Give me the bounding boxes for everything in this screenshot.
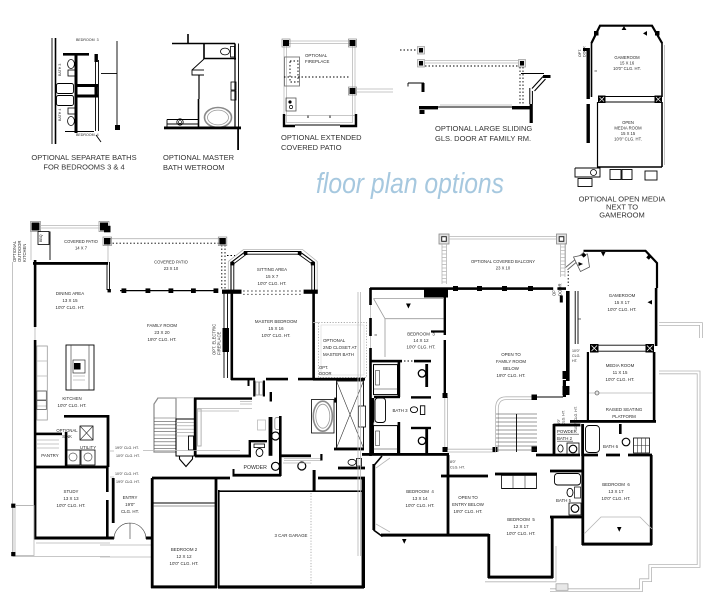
svg-text:GLS. DOOR AT FAMILY RM.: GLS. DOOR AT FAMILY RM. [435, 134, 531, 143]
svg-text:OPTIONAL MASTER: OPTIONAL MASTER [163, 153, 235, 162]
svg-text:FAMILY ROOM: FAMILY ROOM [147, 323, 177, 328]
svg-text:MASTER BATH: MASTER BATH [323, 352, 354, 357]
svg-text:19'0": 19'0" [125, 502, 135, 507]
svg-text:13 X 15: 13 X 15 [62, 298, 78, 303]
svg-text:15 X 16: 15 X 16 [620, 61, 635, 66]
svg-text:DOOR: DOOR [583, 46, 587, 57]
svg-text:BATH 2: BATH 2 [557, 436, 573, 441]
svg-text:BATH 4: BATH 4 [58, 109, 62, 121]
svg-text:PLATFORM: PLATFORM [612, 414, 636, 419]
svg-text:10'0" CLG. HT.: 10'0" CLG. HT. [57, 503, 86, 508]
svg-text:MEDIA ROOM: MEDIA ROOM [606, 363, 635, 368]
svg-text:23 X 20: 23 X 20 [154, 330, 170, 335]
svg-text:23 X 10: 23 X 10 [164, 266, 179, 271]
svg-text:10'0" CLG. HT.: 10'0" CLG. HT. [115, 472, 139, 476]
svg-text:10'0" CLG. HT.: 10'0" CLG. HT. [574, 406, 578, 430]
svg-text:BELOW: BELOW [503, 366, 520, 371]
svg-text:10'0": 10'0" [572, 349, 581, 353]
svg-text:CLG. HT.: CLG. HT. [450, 466, 465, 470]
svg-text:OPEN: OPEN [622, 120, 634, 125]
svg-text:10'0" CLG. HT.: 10'0" CLG. HT. [258, 281, 287, 286]
svg-text:GAMEROOM: GAMEROOM [599, 211, 644, 220]
svg-text:OPTIONAL SEPARATE BATHS: OPTIONAL SEPARATE BATHS [31, 153, 136, 162]
svg-text:15 X 16: 15 X 16 [268, 326, 284, 331]
svg-text:13 X 13: 13 X 13 [63, 496, 79, 501]
svg-text:11 X 15: 11 X 15 [613, 370, 628, 375]
svg-text:OPTIONAL: OPTIONAL [305, 53, 328, 58]
svg-text:OPT.: OPT. [319, 365, 328, 370]
svg-text:OPT.: OPT. [578, 49, 582, 57]
svg-text:DOOR: DOOR [319, 371, 332, 376]
svg-text:OPTIONAL EXTENDED: OPTIONAL EXTENDED [281, 133, 362, 142]
svg-text:10'0" CLG. HT.: 10'0" CLG. HT. [407, 345, 436, 350]
svg-text:OPTIONAL LARGE SLIDING: OPTIONAL LARGE SLIDING [435, 124, 532, 133]
svg-text:HT.: HT. [572, 359, 578, 363]
svg-text:FIREPLACE: FIREPLACE [217, 332, 222, 355]
svg-text:19'0" CLG. HT.: 19'0" CLG. HT. [115, 446, 139, 450]
svg-text:BBQ: BBQ [39, 234, 43, 242]
svg-text:BEDROOM 6: BEDROOM 6 [602, 482, 630, 487]
svg-text:0: 0 [374, 334, 378, 336]
svg-text:2ND CLOSET AT: 2ND CLOSET AT [323, 345, 357, 350]
svg-text:RAISED SEATING: RAISED SEATING [606, 407, 643, 412]
svg-text:BATH 6: BATH 6 [603, 444, 619, 449]
svg-text:8'0": 8'0" [450, 460, 457, 464]
svg-text:BATH WETROOM: BATH WETROOM [163, 163, 225, 172]
svg-text:CLG. HT.: CLG. HT. [121, 509, 139, 514]
svg-text:10'0" CLG. HT.: 10'0" CLG. HT. [602, 496, 631, 501]
svg-text:OPTIONAL COVERED BALCONY: OPTIONAL COVERED BALCONY [471, 259, 535, 264]
svg-text:OPTIONAL: OPTIONAL [323, 338, 346, 343]
svg-text:POWDER: POWDER [244, 465, 268, 471]
svg-text:ENTRY: ENTRY [123, 495, 138, 500]
svg-text:PANTRY: PANTRY [41, 453, 58, 458]
svg-text:0: 0 [578, 318, 582, 320]
svg-text:BEDROOM 2: BEDROOM 2 [171, 547, 198, 552]
svg-text:UTILITY: UTILITY [80, 445, 96, 450]
svg-text:19'0" CLG. HT.: 19'0" CLG. HT. [148, 337, 177, 342]
svg-text:DINING AREA: DINING AREA [56, 291, 84, 296]
svg-text:BATH 3: BATH 3 [393, 408, 409, 413]
svg-text:ENTRY BELOW: ENTRY BELOW [452, 502, 485, 507]
svg-text:floor plan options: floor plan options [316, 168, 504, 200]
svg-text:0: 0 [594, 70, 598, 72]
svg-text:15 X 17: 15 X 17 [614, 300, 630, 305]
svg-text:BEDROOM 4: BEDROOM 4 [406, 489, 434, 494]
svg-text:10'0" CLG. HT.: 10'0" CLG. HT. [116, 454, 140, 458]
svg-text:13 X 17: 13 X 17 [608, 489, 624, 494]
svg-text:10'0" CLG. HT.: 10'0" CLG. HT. [58, 403, 87, 408]
svg-text:10'0" CLG. HT.: 10'0" CLG. HT. [507, 531, 536, 536]
svg-text:10'0" CLG. HT.: 10'0" CLG. HT. [170, 561, 199, 566]
svg-text:KITCHEN: KITCHEN [62, 396, 81, 401]
svg-text:12 X 12: 12 X 12 [176, 554, 192, 559]
svg-text:10'0" CLG. HT.: 10'0" CLG. HT. [608, 307, 637, 312]
svg-text:COVERED PATIO: COVERED PATIO [154, 260, 189, 265]
svg-text:STUDY: STUDY [64, 489, 79, 494]
svg-text:COVERED PATIO: COVERED PATIO [64, 239, 99, 244]
svg-text:FOR BEDROOMS 3 & 4: FOR BEDROOMS 3 & 4 [43, 163, 124, 172]
svg-text:10'0" CLG. HT.: 10'0" CLG. HT. [613, 66, 641, 71]
svg-text:POWDER: POWDER [557, 429, 577, 434]
svg-text:23 X 10: 23 X 10 [496, 266, 511, 271]
svg-text:10'0" CLG. HT.: 10'0" CLG. HT. [262, 333, 291, 338]
svg-text:FIREPLACE: FIREPLACE [305, 59, 329, 64]
svg-text:SITTING AREA: SITTING AREA [257, 267, 287, 272]
svg-text:19'0" CLG. HT.: 19'0" CLG. HT. [116, 480, 140, 484]
svg-text:OPEN TO: OPEN TO [501, 352, 521, 357]
svg-text:15 X 15: 15 X 15 [621, 131, 636, 136]
svg-text:3 CAR GARAGE: 3 CAR GARAGE [275, 533, 308, 538]
svg-text:BEDROOM 5: BEDROOM 5 [507, 517, 535, 522]
svg-text:GAMEROOM: GAMEROOM [609, 293, 636, 298]
svg-text:GAMEROOM: GAMEROOM [614, 55, 640, 60]
svg-text:BATH 3: BATH 3 [58, 64, 62, 76]
svg-text:10'0" CLG. HT.: 10'0" CLG. HT. [56, 305, 85, 310]
svg-text:CLG. HT.: CLG. HT. [562, 410, 566, 425]
svg-text:KITCHEN: KITCHEN [22, 244, 27, 262]
svg-text:BEDROOM 3: BEDROOM 3 [76, 38, 99, 42]
svg-text:BATH 5: BATH 5 [556, 498, 572, 503]
svg-text:FAMILY ROOM: FAMILY ROOM [496, 359, 526, 364]
svg-text:13 X 14: 13 X 14 [412, 496, 428, 501]
svg-text:19'0" CLG. HT.: 19'0" CLG. HT. [454, 509, 483, 514]
svg-text:12 X 17: 12 X 17 [513, 524, 529, 529]
svg-text:19'0" CLG. HT.: 19'0" CLG. HT. [497, 373, 526, 378]
svg-text:MASTER BEDROOM: MASTER BEDROOM [255, 319, 298, 324]
svg-text:14 X 12: 14 X 12 [413, 338, 429, 343]
svg-text:CLG.: CLG. [572, 354, 580, 358]
svg-text:OPEN TO: OPEN TO [458, 495, 478, 500]
svg-text:COVERED PATIO: COVERED PATIO [281, 143, 342, 152]
svg-text:15 X 7: 15 X 7 [266, 274, 279, 279]
svg-text:10'0" CLG. HT.: 10'0" CLG. HT. [614, 137, 642, 142]
svg-text:MEDIA ROOM: MEDIA ROOM [614, 126, 642, 131]
svg-text:14 X 7: 14 X 7 [75, 246, 88, 251]
svg-text:BEDROOM 4: BEDROOM 4 [76, 133, 99, 137]
svg-text:10'0" CLG. HT.: 10'0" CLG. HT. [606, 377, 635, 382]
svg-text:10'0" CLG. HT.: 10'0" CLG. HT. [406, 503, 435, 508]
